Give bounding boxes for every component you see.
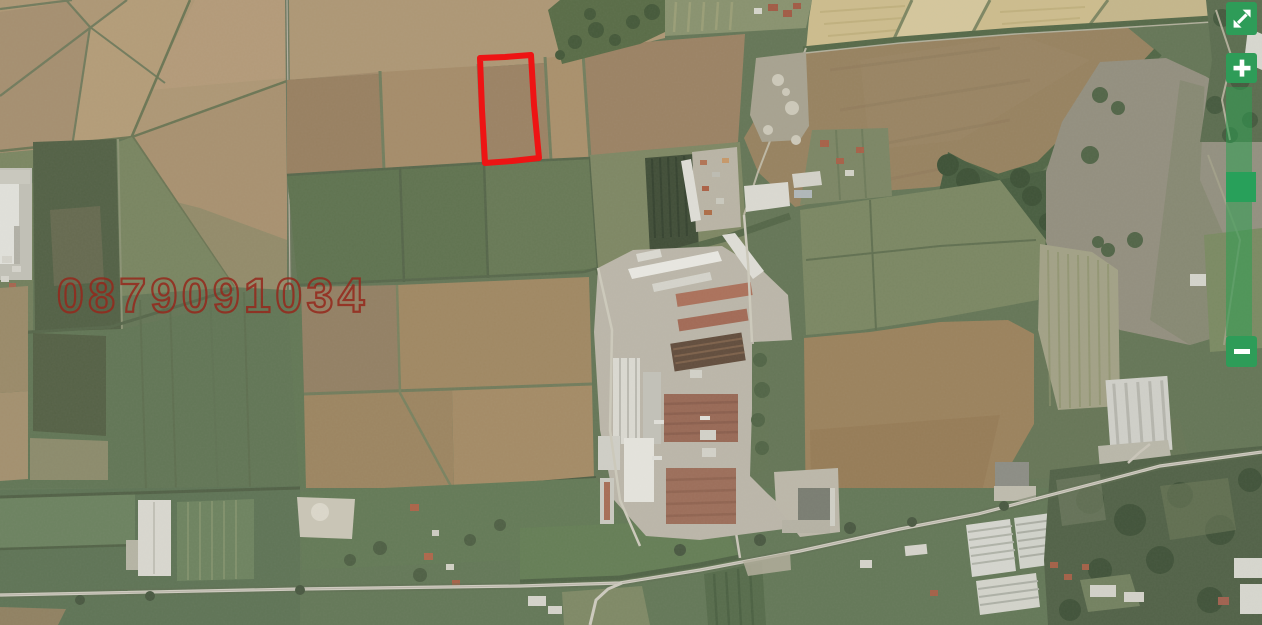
- svg-text:0879091034: 0879091034: [57, 270, 369, 323]
